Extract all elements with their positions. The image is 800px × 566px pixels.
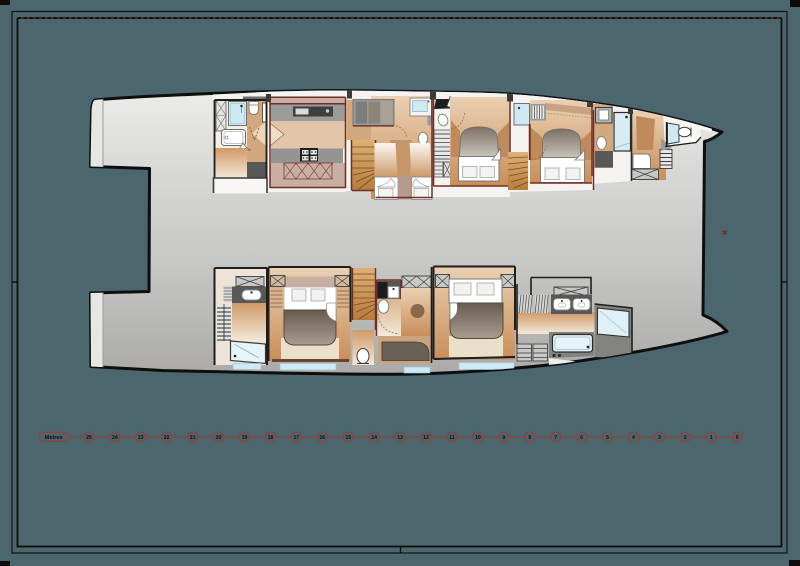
svg-text:15: 15 <box>345 435 351 441</box>
svg-text:Metres: Metres <box>45 435 63 441</box>
svg-text:17: 17 <box>294 435 300 441</box>
svg-text:14: 14 <box>371 435 377 441</box>
svg-text:0: 0 <box>736 435 739 441</box>
svg-text:2: 2 <box>684 435 687 441</box>
svg-text:9: 9 <box>502 435 505 441</box>
svg-text:3: 3 <box>658 435 661 441</box>
svg-text:24: 24 <box>112 435 118 441</box>
svg-text:4: 4 <box>632 435 635 441</box>
svg-text:25: 25 <box>86 435 92 441</box>
svg-text:6: 6 <box>580 435 583 441</box>
svg-text:19: 19 <box>242 435 248 441</box>
svg-text:5: 5 <box>606 435 609 441</box>
svg-text:10: 10 <box>475 435 481 441</box>
svg-text:20: 20 <box>216 435 222 441</box>
svg-text:13: 13 <box>397 435 403 441</box>
svg-text:16: 16 <box>319 435 325 441</box>
svg-text:18: 18 <box>268 435 274 441</box>
svg-text:7: 7 <box>554 435 557 441</box>
svg-text:22: 22 <box>164 435 170 441</box>
svg-text:21: 21 <box>190 435 196 441</box>
svg-text:12: 12 <box>423 435 429 441</box>
svg-text:23: 23 <box>138 435 144 441</box>
svg-text:11: 11 <box>449 435 455 441</box>
svg-text:1: 1 <box>710 435 713 441</box>
svg-text:8: 8 <box>528 435 531 441</box>
